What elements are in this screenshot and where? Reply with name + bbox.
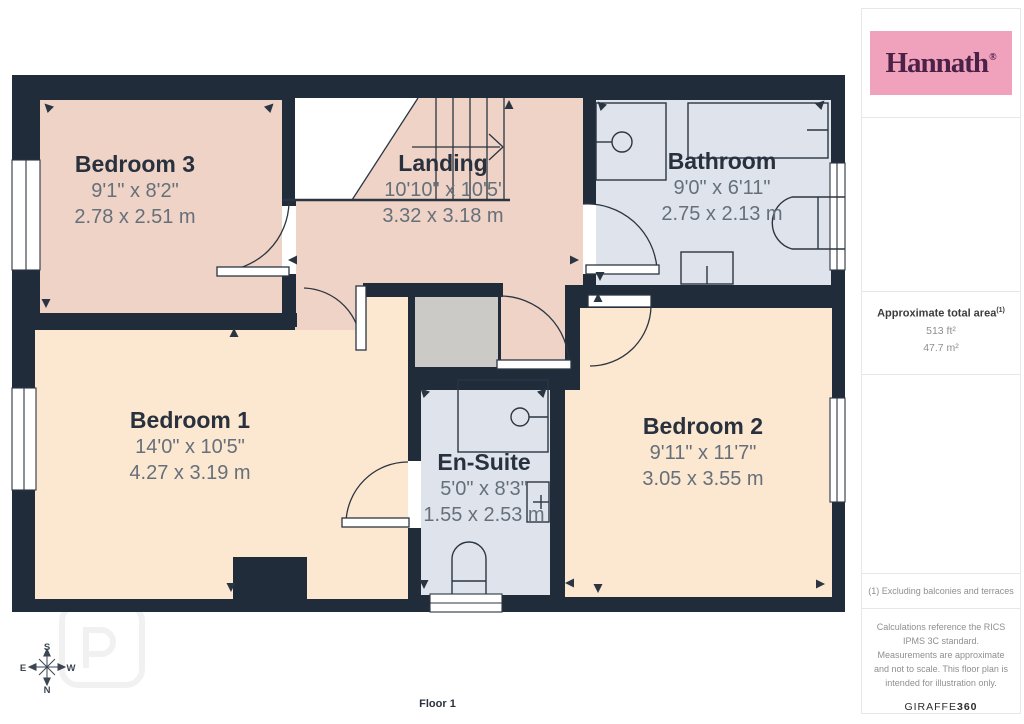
floorplan-page: { "colors": { "wall": "#212c3a", "bedroo… [0, 0, 1024, 724]
area-metric: 47.7 m² [862, 342, 1020, 354]
floor-bathroom [596, 100, 831, 285]
disclaimer-section: Calculations reference the RICS IPMS 3C … [862, 609, 1020, 713]
floor-bedroom-3 [40, 100, 282, 313]
brand-logo-section: Hannath® [862, 9, 1020, 118]
giraffe360-regular: GIRAFFE [904, 701, 957, 713]
giraffe360-logo: GIRAFFE360 [874, 701, 1008, 713]
sidebar-spacer [862, 375, 1020, 574]
window-bedroom-2 [830, 398, 845, 502]
floor-bedroom-1-alcove [363, 297, 408, 337]
footnote: (1) Excluding balconies and terraces [862, 574, 1020, 610]
total-area-section: Approximate total area(1) 513 ft² 47.7 m… [862, 292, 1020, 375]
sidebar: Hannath® Approximate total area(1) 513 f… [861, 8, 1021, 714]
floorplan-drawing: S E W N [0, 0, 860, 724]
area-title: Approximate total area(1) [862, 307, 1020, 320]
floor-bedroom-1 [35, 330, 408, 599]
compass-north: N [44, 685, 51, 696]
floor-bedroom-2-lower [565, 390, 832, 597]
window-en-suite [430, 594, 502, 612]
area-title-footnote-ref: (1) [996, 307, 1005, 314]
compass-icon: S E W N [20, 642, 76, 696]
floor-bedroom-2-upper [580, 308, 832, 393]
area-title-text: Approximate total area [877, 308, 996, 320]
floor-label: Floor 1 [380, 698, 495, 710]
area-imperial: 513 ft² [862, 325, 1020, 337]
disclaimer-text: Calculations reference the RICS IPMS 3C … [874, 621, 1008, 691]
giraffe360-bold: 360 [957, 701, 978, 713]
compass-south: S [44, 642, 50, 653]
window-bedroom-3 [12, 160, 40, 270]
brand-name: Hannath [885, 47, 988, 80]
compass-west: W [67, 663, 76, 674]
registered-mark: ® [989, 52, 996, 63]
brand-logo: Hannath® [870, 31, 1012, 95]
cupboard [415, 297, 501, 367]
window-bathroom [830, 163, 845, 270]
sidebar-spacer [862, 118, 1020, 292]
compass-east: E [20, 663, 26, 674]
window-bedroom-1 [12, 388, 36, 490]
